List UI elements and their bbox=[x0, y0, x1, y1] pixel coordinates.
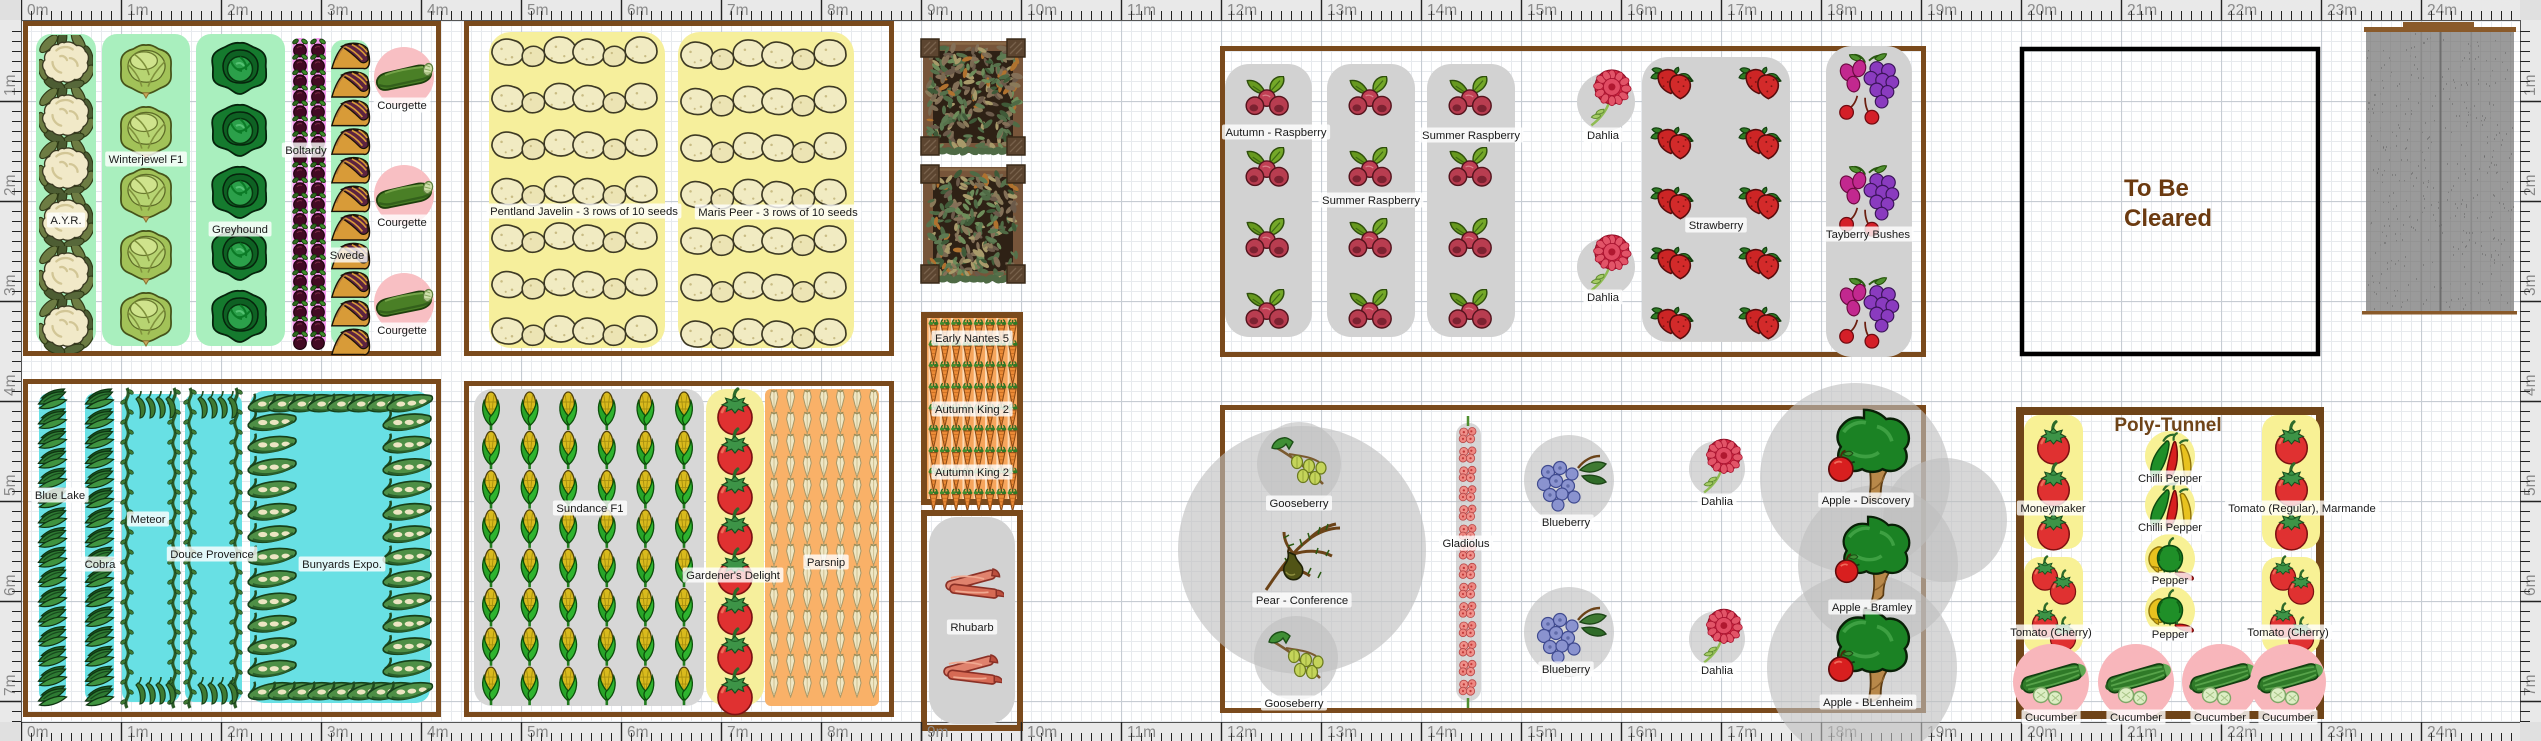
svg-text:Cobra: Cobra bbox=[85, 559, 116, 571]
svg-text:Gladiolus: Gladiolus bbox=[1442, 538, 1489, 550]
svg-text:6m: 6m bbox=[2, 574, 19, 596]
svg-text:Courgette: Courgette bbox=[377, 100, 427, 112]
svg-text:Sundance F1: Sundance F1 bbox=[556, 503, 623, 515]
svg-text:9m: 9m bbox=[927, 724, 949, 741]
svg-text:Pepper: Pepper bbox=[2152, 629, 2189, 641]
svg-text:Gooseberry: Gooseberry bbox=[1264, 698, 1323, 710]
svg-text:4m: 4m bbox=[2, 374, 19, 396]
svg-text:Tomato (Cherry): Tomato (Cherry) bbox=[2247, 627, 2329, 639]
svg-text:1m: 1m bbox=[2522, 74, 2539, 96]
svg-text:3m: 3m bbox=[2522, 274, 2539, 296]
svg-text:Autumn King 2: Autumn King 2 bbox=[935, 404, 1009, 416]
svg-text:1m: 1m bbox=[2, 74, 19, 96]
svg-text:Dahlia: Dahlia bbox=[1701, 496, 1734, 508]
svg-text:6m: 6m bbox=[2522, 574, 2539, 596]
svg-text:Cucumber: Cucumber bbox=[2194, 712, 2246, 724]
svg-text:Courgette: Courgette bbox=[377, 325, 427, 337]
svg-text:2m: 2m bbox=[2, 174, 19, 196]
svg-text:1m: 1m bbox=[127, 2, 149, 19]
svg-text:Dahlia: Dahlia bbox=[1587, 292, 1620, 304]
svg-text:Winterjewel F1: Winterjewel F1 bbox=[109, 154, 184, 166]
svg-text:Courgette: Courgette bbox=[377, 217, 427, 229]
svg-text:8m: 8m bbox=[827, 724, 849, 741]
svg-text:Moneymaker: Moneymaker bbox=[2020, 503, 2086, 515]
svg-text:Parsnip: Parsnip bbox=[807, 557, 845, 569]
svg-text:Dahlia: Dahlia bbox=[1701, 665, 1734, 677]
svg-text:Early Nantes 5: Early Nantes 5 bbox=[935, 333, 1009, 345]
svg-text:3m: 3m bbox=[327, 724, 349, 741]
svg-text:Swede: Swede bbox=[330, 250, 365, 262]
svg-text:7m: 7m bbox=[2522, 674, 2539, 696]
svg-text:7m: 7m bbox=[727, 724, 749, 741]
svg-text:Chilli Pepper: Chilli Pepper bbox=[2138, 522, 2202, 534]
svg-text:Apple - Discovery: Apple - Discovery bbox=[1822, 495, 1911, 507]
svg-text:Douce Provence: Douce Provence bbox=[170, 549, 254, 561]
svg-text:Cucumber: Cucumber bbox=[2262, 712, 2314, 724]
svg-text:Pepper: Pepper bbox=[2152, 575, 2189, 587]
svg-text:Blueberry: Blueberry bbox=[1542, 517, 1591, 529]
svg-text:Autumn - Raspberry: Autumn - Raspberry bbox=[1225, 127, 1326, 139]
svg-text:5m: 5m bbox=[527, 2, 549, 19]
svg-text:Pear - Conference: Pear - Conference bbox=[1256, 595, 1348, 607]
svg-text:1m: 1m bbox=[127, 724, 149, 741]
svg-text:Summer Raspberry: Summer Raspberry bbox=[1322, 195, 1420, 207]
svg-text:Blueberry: Blueberry bbox=[1542, 664, 1591, 676]
svg-text:A.Y.R.: A.Y.R. bbox=[50, 215, 81, 227]
svg-text:Tomato (Cherry): Tomato (Cherry) bbox=[2010, 627, 2092, 639]
svg-text:Maris Peer - 3 rows of 10 seed: Maris Peer - 3 rows of 10 seeds bbox=[698, 207, 858, 219]
svg-text:Tayberry Bushes: Tayberry Bushes bbox=[1826, 229, 1910, 241]
svg-text:Rhubarb: Rhubarb bbox=[950, 622, 993, 634]
svg-text:3m: 3m bbox=[327, 2, 349, 19]
svg-text:Boltardy: Boltardy bbox=[285, 145, 327, 157]
svg-text:Chilli Pepper: Chilli Pepper bbox=[2138, 473, 2202, 485]
svg-text:5m: 5m bbox=[527, 724, 549, 741]
svg-text:0m: 0m bbox=[27, 2, 49, 19]
svg-text:Gooseberry: Gooseberry bbox=[1269, 498, 1328, 510]
svg-text:5m: 5m bbox=[2, 474, 19, 496]
svg-text:To Be: To Be bbox=[2124, 175, 2189, 202]
svg-text:Cucumber: Cucumber bbox=[2025, 712, 2077, 724]
svg-text:Tomato (Regular), Marmande: Tomato (Regular), Marmande bbox=[2228, 503, 2376, 515]
svg-text:0m: 0m bbox=[27, 724, 49, 741]
svg-text:6m: 6m bbox=[627, 724, 649, 741]
svg-text:2m: 2m bbox=[227, 2, 249, 19]
svg-text:Meteor: Meteor bbox=[130, 514, 165, 526]
svg-text:Summer Raspberry: Summer Raspberry bbox=[1422, 130, 1520, 142]
svg-text:4m: 4m bbox=[427, 724, 449, 741]
svg-text:7m: 7m bbox=[727, 2, 749, 19]
svg-text:Autumn King 2: Autumn King 2 bbox=[935, 467, 1009, 479]
svg-text:Gardener's Delight: Gardener's Delight bbox=[686, 570, 781, 582]
svg-text:3m: 3m bbox=[2, 274, 19, 296]
svg-text:10m: 10m bbox=[1027, 724, 1057, 741]
svg-text:Apple - BLenheim: Apple - BLenheim bbox=[1823, 697, 1913, 709]
svg-text:4m: 4m bbox=[427, 2, 449, 19]
svg-text:7m: 7m bbox=[2, 674, 19, 696]
svg-text:Cleared: Cleared bbox=[2124, 205, 2212, 232]
svg-text:8m: 8m bbox=[827, 2, 849, 19]
svg-text:5m: 5m bbox=[2522, 474, 2539, 496]
svg-text:Strawberry: Strawberry bbox=[1689, 220, 1744, 232]
svg-text:Blue Lake: Blue Lake bbox=[35, 490, 85, 502]
svg-text:Dahlia: Dahlia bbox=[1587, 130, 1620, 142]
svg-text:2m: 2m bbox=[2522, 174, 2539, 196]
svg-text:9m: 9m bbox=[927, 2, 949, 19]
svg-text:Apple - Bramley: Apple - Bramley bbox=[1832, 602, 1913, 614]
svg-text:2m: 2m bbox=[227, 724, 249, 741]
svg-text:Greyhound: Greyhound bbox=[212, 224, 268, 236]
svg-text:Pentland Javelin - 3 rows of 1: Pentland Javelin - 3 rows of 10 seeds bbox=[490, 206, 678, 218]
svg-text:6m: 6m bbox=[627, 2, 649, 19]
svg-text:Cucumber: Cucumber bbox=[2110, 712, 2162, 724]
svg-text:Bunyards Expo.: Bunyards Expo. bbox=[302, 559, 382, 571]
svg-text:4m: 4m bbox=[2522, 374, 2539, 396]
